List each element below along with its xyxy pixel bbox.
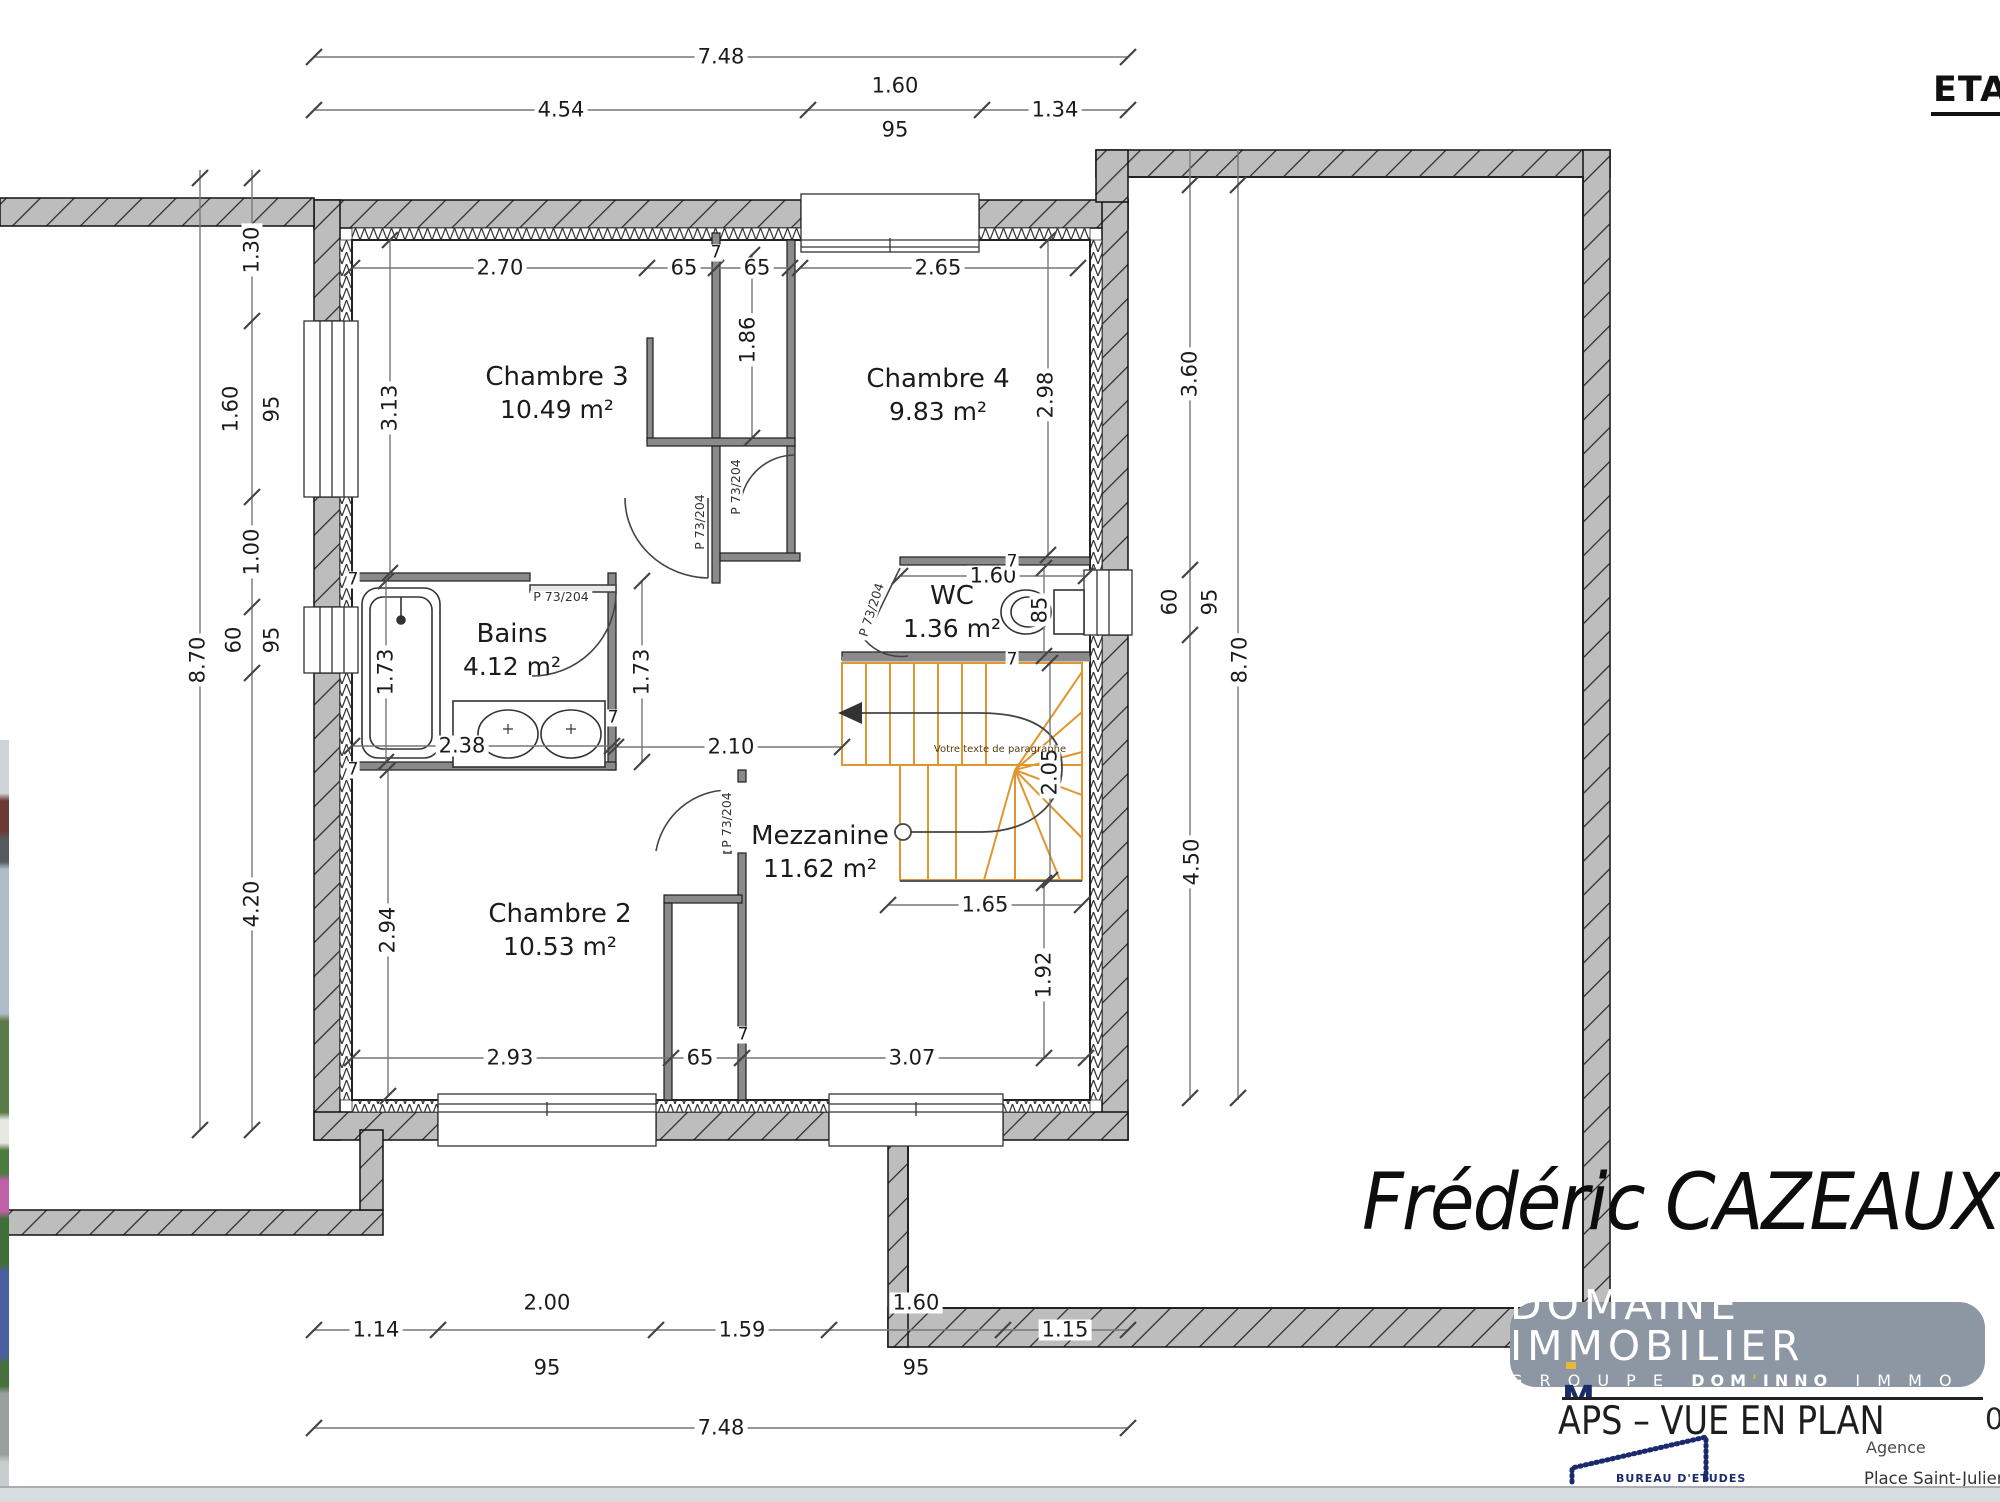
dim-label: 95 (262, 624, 283, 657)
brand-name: DOMAINE IMMOBILIER (1510, 1285, 1985, 1367)
door-label: P 73/204 (721, 789, 734, 851)
dim-label: 3.07 (886, 1048, 939, 1069)
dim-label: 1.14 (350, 1320, 403, 1341)
window-top (801, 194, 979, 252)
window-left-1 (304, 321, 358, 497)
seven-label: 7 (607, 710, 620, 727)
photo-edge-strip (0, 740, 9, 1500)
clipped-client-name: M. CAZEAUX (1562, 1383, 1822, 1397)
dim-label: 1.60 (890, 1293, 943, 1314)
dim-label: 2.38 (436, 736, 489, 757)
dim-label: 1.15 (1039, 1320, 1092, 1341)
dim-label: 2.10 (705, 737, 758, 758)
dim-label: 1.73 (632, 646, 653, 699)
dim-label: 1.86 (738, 314, 759, 367)
door-label: P 73/204 (530, 591, 592, 604)
dim-label: 7.48 (695, 47, 748, 68)
yellow-accent (1566, 1362, 1576, 1369)
dim-label: 95 (879, 120, 912, 141)
seven-label: 7 (737, 1027, 750, 1044)
room-label: Chambre 49.83 m² (863, 363, 1012, 427)
dim-label: 85 (1030, 594, 1051, 627)
brand-badge: DOMAINE IMMOBILIER G R O U P E DOM'INNO … (1510, 1302, 1985, 1387)
window-left-2 (304, 607, 358, 673)
seven-label: 7 (710, 245, 723, 262)
dim-label: 65 (684, 1048, 717, 1069)
agency-label: Agence (1866, 1438, 1926, 1457)
dim-label: 1.30 (242, 224, 263, 277)
dim-label: 2.94 (378, 904, 399, 957)
dim-label: 95 (531, 1358, 564, 1379)
room-label: WC1.36 m² (900, 580, 1004, 644)
dim-label: 1.60 (869, 76, 922, 97)
window-bottom-2 (829, 1094, 1003, 1146)
dim-label: 1.60 (221, 383, 242, 436)
room-label: Chambre 210.53 m² (485, 898, 634, 962)
door-label: P 73/204 (730, 456, 743, 518)
dim-label: 60 (1160, 586, 1181, 619)
page-title: ETAGE (1931, 70, 2000, 116)
dim-label: 3.60 (1180, 348, 1201, 401)
window-bottom-1 (438, 1094, 656, 1146)
dim-label: 65 (741, 258, 774, 279)
dim-label: 1.92 (1034, 949, 1055, 1002)
dim-label: 4.20 (242, 878, 263, 931)
dim-label: 1.65 (959, 895, 1012, 916)
dim-label: 60 (224, 624, 245, 657)
signature-text: Frédéric CAZEAUX (1362, 1158, 1957, 1248)
door-label: P 73/204 (694, 491, 707, 553)
dim-label: 95 (900, 1358, 933, 1379)
dim-label: 8.70 (188, 634, 209, 687)
dim-label: 1.00 (242, 526, 263, 579)
page: 7.484.541.601.34951.301.60951.0060954.20… (0, 0, 2000, 1500)
dim-label: 1.73 (376, 646, 397, 699)
dim-label: 3.13 (380, 382, 401, 435)
document-type-label: APS – VUE EN PLAN (1558, 1399, 1885, 1444)
clipped-phone-number: 0 (1985, 1402, 2000, 1436)
dim-label: 1.34 (1029, 100, 1082, 121)
dim-label: 1.59 (716, 1320, 769, 1341)
seven-label: 7 (347, 572, 360, 589)
dim-label: 4.54 (535, 100, 588, 121)
dim-label: 2.98 (1036, 369, 1057, 422)
room-label: Bains4.12 m² (460, 618, 564, 682)
stair-note: Votre texte de paragraphe (931, 745, 1069, 755)
dim-label: 2.00 (521, 1293, 574, 1314)
dim-label: 2.70 (474, 258, 527, 279)
dim-label: 2.65 (912, 258, 965, 279)
dim-label: 7.48 (695, 1418, 748, 1439)
seven-label: 7 (1006, 554, 1019, 571)
dim-label: 4.50 (1182, 836, 1203, 889)
dim-label: 2.93 (484, 1048, 537, 1069)
bureau-etudes-label: BUREAU D'ETUDES (1616, 1472, 1746, 1485)
seven-label: 7 (347, 762, 360, 779)
window-right-wc (1084, 570, 1132, 635)
dim-label: 8.70 (1230, 634, 1251, 687)
room-label: Chambre 310.49 m² (482, 361, 631, 425)
dim-label: 95 (262, 393, 283, 426)
room-label: Mezzanine11.62 m² (748, 820, 892, 884)
dim-label: 65 (668, 258, 701, 279)
seven-label: 7 (1006, 652, 1019, 669)
dim-label: 95 (1200, 586, 1221, 619)
